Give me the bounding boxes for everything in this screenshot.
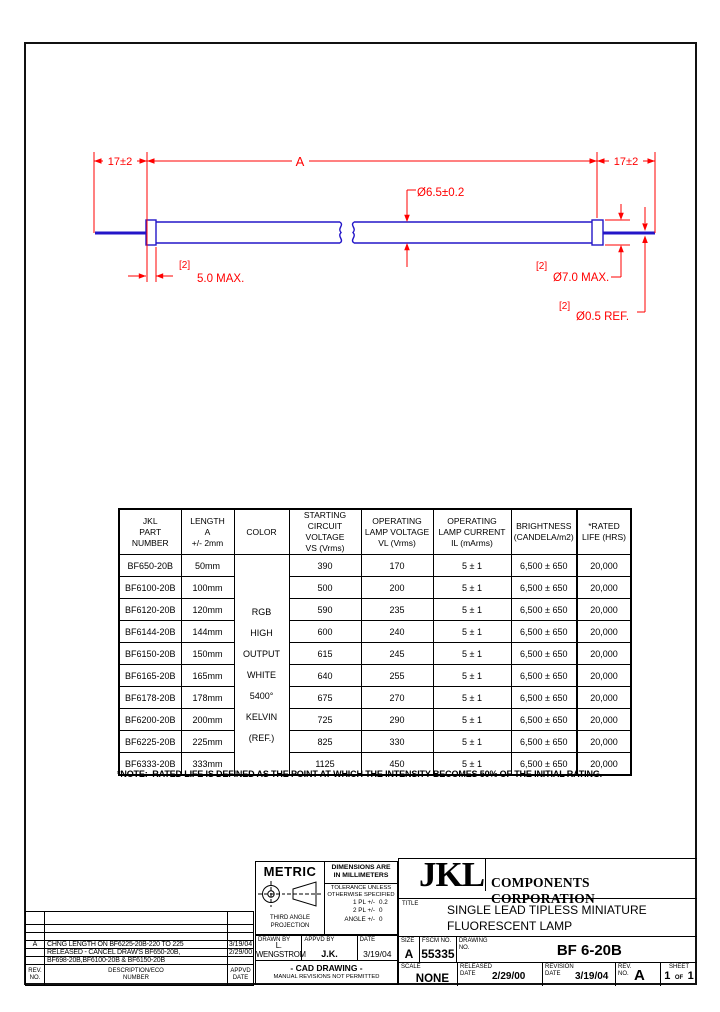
revision-empty-row xyxy=(26,925,254,933)
released-date-cell: RELEASED DATE 2/29/00 xyxy=(458,963,543,986)
col-header-part: JKL PART NUMBER xyxy=(119,509,181,555)
table-row: BF6100-20B 100mm 500 200 5 ± 1 6,500 ± 6… xyxy=(119,577,631,599)
revision-date-cell: REVISION DATE 3/19/04 xyxy=(543,963,616,986)
cell-vs: 500 xyxy=(289,577,361,599)
cell-vs: 825 xyxy=(289,731,361,753)
revision-col-rev: REV. NO. xyxy=(26,965,45,986)
cell-il: 5 ± 1 xyxy=(433,665,511,687)
table-row: BF6200-20B 200mm 725 290 5 ± 1 6,500 ± 6… xyxy=(119,709,631,731)
manual-revisions-label: MANUAL REVISIONS NOT PERMITTED xyxy=(256,974,397,980)
cell-brightness: 6,500 ± 650 xyxy=(511,665,577,687)
cad-drawing-label: - CAD DRAWING - xyxy=(256,963,397,973)
revision-date-label: REVISION DATE xyxy=(545,964,574,978)
logo-row: JKL COMPONENTS CORPORATION xyxy=(399,859,697,899)
table-row: BF6144-20B 144mm 600 240 5 ± 1 6,500 ± 6… xyxy=(119,621,631,643)
lamp-outline xyxy=(95,220,655,245)
cell-length: 120mm xyxy=(181,599,234,621)
title-section: JKL COMPONENTS CORPORATION TITLE SINGLE … xyxy=(398,858,697,985)
tolerance-value: 0 xyxy=(379,907,397,916)
qty-cap-dia-label: [2] xyxy=(536,261,547,272)
cell-length: 100mm xyxy=(181,577,234,599)
appvd-by-value: J.K. xyxy=(302,949,356,959)
cell-il: 5 ± 1 xyxy=(433,731,511,753)
jkl-logo: JKL xyxy=(419,855,484,895)
dim-overall-length-label: A xyxy=(296,154,305,169)
approval-block: DRAWN BY L. WENGSTROM APPVD BY J.K. DATE… xyxy=(255,935,398,985)
table-row: BF6150-20B 150mm 615 245 5 ± 1 6,500 ± 6… xyxy=(119,643,631,665)
revision-description: RELEASED - CANCEL DRAW'S BF650-20B, xyxy=(45,949,228,957)
revision-description: BF698-20B,BF6100-20B & BF6150-20B xyxy=(45,957,228,965)
drawing-title: SINGLE LEAD TIPLESS MINIATURE FLUORESCEN… xyxy=(447,903,647,934)
col-header-color: COLOR xyxy=(234,509,289,555)
tube-break-right xyxy=(353,222,355,243)
spec-header-row: JKL PART NUMBER LENGTH A +/- 2mm COLOR S… xyxy=(119,509,631,555)
revision-letter: A xyxy=(26,941,45,949)
cell-il: 5 ± 1 xyxy=(433,577,511,599)
cell-life: 20,000 xyxy=(577,555,631,577)
cell-brightness: 6,500 ± 650 xyxy=(511,731,577,753)
cell-vl: 270 xyxy=(361,687,433,709)
scale-value: NONE xyxy=(399,973,449,985)
dim-cap-length-label: 5.0 MAX. xyxy=(197,273,244,285)
cell-brightness: 6,500 ± 650 xyxy=(511,577,577,599)
cell-color: RGB HIGH OUTPUT WHITE 5400° KELVIN (REF.… xyxy=(234,555,289,776)
size-value: A xyxy=(399,947,419,961)
dim-lead-right-label: 17±2 xyxy=(614,156,638,168)
qty-lead-dia-label: [2] xyxy=(559,301,570,312)
col-header-il: OPERATING LAMP CURRENT IL (mArms) xyxy=(433,509,511,555)
metric-label: METRIC xyxy=(256,864,324,879)
tolerance-row: ANGLE +/- 0 xyxy=(325,916,397,925)
tolerance-row: 2 PL +/- 0 xyxy=(325,907,397,916)
title-label: TITLE xyxy=(402,901,418,907)
scale-cell: SCALE NONE xyxy=(399,963,458,986)
cell-vs: 725 xyxy=(289,709,361,731)
sheet-total: 1 xyxy=(688,970,694,982)
revision-letter xyxy=(26,949,45,957)
table-row: BF6120-20B 120mm 590 235 5 ± 1 6,500 ± 6… xyxy=(119,599,631,621)
cell-length: 178mm xyxy=(181,687,234,709)
dimension-labels: 17±2 A 17±2 Ø6.5±0.2 [2] 5.0 MAX. [2] Ø7… xyxy=(108,154,638,323)
cell-il: 5 ± 1 xyxy=(433,555,511,577)
cell-brightness: 6,500 ± 650 xyxy=(511,643,577,665)
tolerance-value: 0.2 xyxy=(379,899,397,908)
revision-date xyxy=(228,957,254,965)
dim-tube-dia-label: Ø6.5±0.2 xyxy=(417,187,464,199)
cell-life: 20,000 xyxy=(577,731,631,753)
cell-life: 20,000 xyxy=(577,709,631,731)
revision-description: CHNG LENGTH ON BF6225-20B-220 TO 225 xyxy=(45,941,228,949)
cell-part: BF6225-20B xyxy=(119,731,181,753)
cell-length: 144mm xyxy=(181,621,234,643)
tube-break-left xyxy=(340,222,342,243)
scale-info-row: SCALE NONE RELEASED DATE 2/29/00 REVISIO… xyxy=(399,962,697,986)
cell-il: 5 ± 1 xyxy=(433,621,511,643)
sheet-cell: SHEET 1 OF 1 xyxy=(661,963,697,986)
drawing-no-value: BF 6-20B xyxy=(557,942,622,959)
cell-il: 5 ± 1 xyxy=(433,687,511,709)
cell-vl: 255 xyxy=(361,665,433,687)
revision-empty-row xyxy=(26,912,254,925)
table-row: BF6165-20B 165mm 640 255 5 ± 1 6,500 ± 6… xyxy=(119,665,631,687)
cell-length: 165mm xyxy=(181,665,234,687)
fscm-label: FSCM NO. xyxy=(422,938,451,945)
cell-vl: 170 xyxy=(361,555,433,577)
col-header-vl: OPERATING LAMP VOLTAGE VL (Vrms) xyxy=(361,509,433,555)
fscm-value: 55335 xyxy=(420,947,456,961)
dimensions-box: DIMENSIONS ARE IN MILLIMETERS TOLERANCE … xyxy=(324,861,398,935)
dim-cap-dia-label: Ø7.0 MAX. xyxy=(553,272,609,284)
cell-vl: 330 xyxy=(361,731,433,753)
released-date-label: RELEASED DATE xyxy=(460,964,492,978)
rated-life-note: *NOTE: RATED LIFE IS DEFINED AS THE POIN… xyxy=(117,769,602,779)
appvd-by-label: APPVD BY xyxy=(304,937,334,944)
cell-vl: 245 xyxy=(361,643,433,665)
cell-il: 5 ± 1 xyxy=(433,643,511,665)
tolerance-label: ANGLE +/- xyxy=(325,916,379,925)
size-cell: SIZE A xyxy=(399,937,420,962)
tolerance-label: 2 PL +/- xyxy=(325,907,379,916)
cell-length: 200mm xyxy=(181,709,234,731)
revision-table: A CHNG LENGTH ON BF6225-20B-220 TO 225 3… xyxy=(25,911,254,986)
cell-vl: 240 xyxy=(361,621,433,643)
col-header-length: LENGTH A +/- 2mm xyxy=(181,509,234,555)
cell-life: 20,000 xyxy=(577,665,631,687)
revision-date: 2/29/00 xyxy=(228,949,254,957)
cell-brightness: 6,500 ± 650 xyxy=(511,621,577,643)
revision-row: A CHNG LENGTH ON BF6225-20B-220 TO 225 3… xyxy=(26,941,254,949)
spec-table: JKL PART NUMBER LENGTH A +/- 2mm COLOR S… xyxy=(118,508,632,776)
cell-part: BF6150-20B xyxy=(119,643,181,665)
cell-vs: 600 xyxy=(289,621,361,643)
dim-lead-dia-label: Ø0.5 REF. xyxy=(576,311,629,323)
cap-right xyxy=(592,220,603,245)
table-row: BF650-20B 50mm RGB HIGH OUTPUT WHITE 540… xyxy=(119,555,631,577)
cell-part: BF6100-20B xyxy=(119,577,181,599)
drawing-no-label: DRAWING NO. xyxy=(459,938,488,952)
cell-life: 20,000 xyxy=(577,687,631,709)
cell-brightness: 6,500 ± 650 xyxy=(511,555,577,577)
drawing-info-row: SIZE A FSCM NO. 55335 DRAWING NO. BF 6-2… xyxy=(399,936,697,962)
tolerance-value: 0 xyxy=(379,916,397,925)
lamp-drawing: 17±2 A 17±2 Ø6.5±0.2 [2] 5.0 MAX. [2] Ø7… xyxy=(0,0,720,340)
cell-brightness: 6,500 ± 650 xyxy=(511,599,577,621)
appvd-by-cell: APPVD BY J.K. xyxy=(302,936,357,960)
approval-date-value: 3/19/04 xyxy=(358,949,397,959)
cell-vs: 640 xyxy=(289,665,361,687)
rev-no-value: A xyxy=(634,967,660,984)
cell-il: 5 ± 1 xyxy=(433,709,511,731)
title-block: A CHNG LENGTH ON BF6225-20B-220 TO 225 3… xyxy=(24,855,697,985)
revision-col-description: DESCRIPTION/ECO NUMBER xyxy=(45,965,228,986)
sheet-of: OF xyxy=(675,975,683,981)
revision-row: BF698-20B,BF6100-20B & BF6150-20B xyxy=(26,957,254,965)
tolerance-label: 1 PL +/- xyxy=(325,899,379,908)
cell-il: 5 ± 1 xyxy=(433,599,511,621)
revision-header-row: REV. NO. DESCRIPTION/ECO NUMBER APPVD DA… xyxy=(26,965,254,986)
cell-life: 20,000 xyxy=(577,643,631,665)
cad-note: - CAD DRAWING - MANUAL REVISIONS NOT PER… xyxy=(256,963,397,987)
third-angle-projection-icon xyxy=(258,879,322,909)
cell-length: 150mm xyxy=(181,643,234,665)
cell-life: 20,000 xyxy=(577,621,631,643)
revision-row: RELEASED - CANCEL DRAW'S BF650-20B, 2/29… xyxy=(26,949,254,957)
cell-part: BF6144-20B xyxy=(119,621,181,643)
projection-label: THIRD ANGLE PROJECTION xyxy=(256,915,324,930)
rev-no-cell: REV. NO. A xyxy=(616,963,661,986)
table-row: BF6225-20B 225mm 825 330 5 ± 1 6,500 ± 6… xyxy=(119,731,631,753)
drawn-by-value: L. WENGSTROM xyxy=(256,941,301,959)
cell-brightness: 6,500 ± 650 xyxy=(511,709,577,731)
sheet-num: 1 xyxy=(664,970,670,982)
cell-brightness: 6,500 ± 650 xyxy=(511,687,577,709)
cell-life: 20,000 xyxy=(577,599,631,621)
cell-part: BF6178-20B xyxy=(119,687,181,709)
revision-col-date: APPVD DATE xyxy=(228,965,254,986)
logo-divider xyxy=(485,859,486,891)
approval-date-cell: DATE 3/19/04 xyxy=(358,936,397,960)
cell-part: BF650-20B xyxy=(119,555,181,577)
dim-lead-left-label: 17±2 xyxy=(108,156,132,168)
cell-life: 20,000 xyxy=(577,577,631,599)
scale-label: SCALE xyxy=(401,964,421,971)
cell-vs: 390 xyxy=(289,555,361,577)
cell-vl: 235 xyxy=(361,599,433,621)
cell-length: 225mm xyxy=(181,731,234,753)
qty-cap-label: [2] xyxy=(179,260,190,271)
dimensions-note: DIMENSIONS ARE IN MILLIMETERS xyxy=(325,862,397,884)
col-header-brightness: BRIGHTNESS (CANDELA/m2) xyxy=(511,509,577,555)
approval-row: DRAWN BY L. WENGSTROM APPVD BY J.K. DATE… xyxy=(256,936,397,961)
revision-date: 3/19/04 xyxy=(228,941,254,949)
size-label: SIZE xyxy=(401,938,414,945)
tolerance-row: 1 PL +/- 0.2 xyxy=(325,899,397,908)
tolerance-note: TOLERANCE UNLESS OTHERWISE SPECIFIED xyxy=(325,885,397,899)
cell-vl: 290 xyxy=(361,709,433,731)
cell-vl: 200 xyxy=(361,577,433,599)
revision-date-value: 3/19/04 xyxy=(575,971,615,982)
title-row: TITLE SINGLE LEAD TIPLESS MINIATURE FLUO… xyxy=(399,899,697,936)
drawn-by-cell: DRAWN BY L. WENGSTROM xyxy=(256,936,302,960)
table-row: BF6178-20B 178mm 675 270 5 ± 1 6,500 ± 6… xyxy=(119,687,631,709)
cell-part: BF6165-20B xyxy=(119,665,181,687)
metric-box: METRIC THIRD ANGLE PROJECTION xyxy=(255,861,325,935)
revision-letter xyxy=(26,957,45,965)
dimension-label-masks xyxy=(103,152,643,168)
rev-no-label: REV. NO. xyxy=(618,964,631,978)
fscm-cell: FSCM NO. 55335 xyxy=(420,937,457,962)
cell-length: 50mm xyxy=(181,555,234,577)
cell-vs: 675 xyxy=(289,687,361,709)
revision-empty-row xyxy=(26,933,254,941)
drawing-no-cell: DRAWING NO. BF 6-20B xyxy=(457,937,697,962)
cell-part: BF6200-20B xyxy=(119,709,181,731)
cell-vs: 590 xyxy=(289,599,361,621)
col-header-life: *RATED LIFE (HRS) xyxy=(577,509,631,555)
col-header-vs: STARTING CIRCUIT VOLTAGE VS (Vrms) xyxy=(289,509,361,555)
dimension-lines xyxy=(94,152,655,312)
cell-vs: 615 xyxy=(289,643,361,665)
cell-part: BF6120-20B xyxy=(119,599,181,621)
approval-date-label: DATE xyxy=(360,937,376,944)
color-description: RGB HIGH OUTPUT WHITE 5400° KELVIN (REF.… xyxy=(235,581,289,749)
released-date-value: 2/29/00 xyxy=(492,971,542,982)
